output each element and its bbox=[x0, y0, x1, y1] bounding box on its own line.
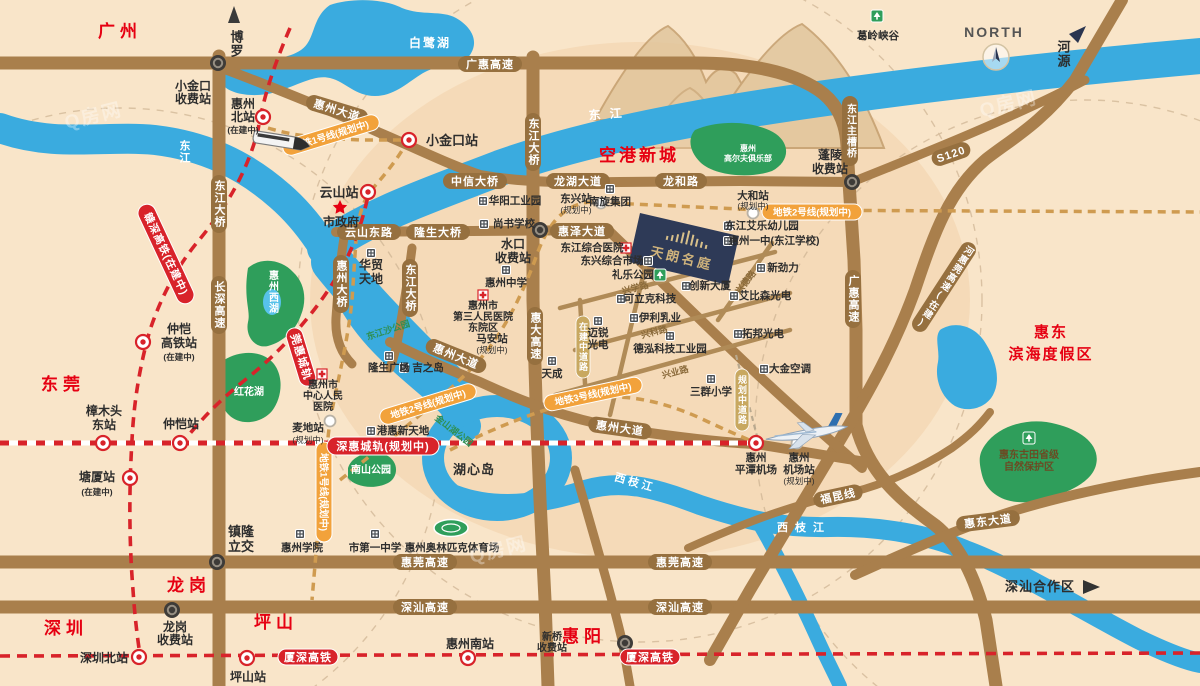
label-gutian-2: 自然保护区 bbox=[1004, 460, 1054, 473]
badge-shenshan-1: 深汕高速 bbox=[401, 600, 449, 614]
label-mairui-2: 光电 bbox=[587, 338, 609, 351]
label-chuangxin: 创新大厦 bbox=[688, 279, 731, 292]
label-longsheng-plaza: 隆生广场 bbox=[368, 361, 410, 374]
longgang-toll-icon bbox=[164, 602, 180, 618]
label-zk-hsr-2: 高铁站 bbox=[161, 335, 197, 350]
label-apsta-2: 机场站 bbox=[783, 463, 815, 476]
label-huayang: 华阳工业园 bbox=[489, 194, 542, 207]
label-huxindao: 湖心岛 bbox=[453, 462, 495, 477]
label-dahe-2: (规划中) bbox=[737, 201, 768, 211]
label-guangzhou: 广州 bbox=[98, 21, 142, 41]
label-h3-3: 东院区 bbox=[468, 321, 498, 334]
label-xizhi-2: 西枝江 bbox=[777, 520, 831, 534]
central-hospital-icon bbox=[317, 369, 327, 379]
ganghui-icon bbox=[367, 427, 376, 436]
badge-guanghui-top: 广惠高速 bbox=[466, 57, 514, 71]
label-dongxing-2: (规划中) bbox=[560, 205, 591, 215]
label-bailu-lake: 白鹭湖 bbox=[409, 35, 451, 50]
label-chosp-3: 医院 bbox=[313, 400, 333, 413]
label-maidi-2: (规划中) bbox=[292, 435, 323, 445]
label-boluo: 博罗 bbox=[229, 29, 244, 58]
label-shenzhen: 深圳 bbox=[44, 618, 88, 638]
pingtan-airport-icon bbox=[749, 436, 763, 450]
label-lile-park: 礼乐公园 bbox=[612, 268, 654, 281]
badge-longhe-rd: 龙和路 bbox=[662, 174, 699, 188]
label-jusco: 吉之岛 bbox=[412, 361, 444, 374]
label-xjk-toll-1: 小金口 bbox=[175, 78, 211, 93]
label-shenshan-coop: 深汕合作区 bbox=[1005, 579, 1075, 594]
longsheng-plaza-icon bbox=[385, 352, 394, 361]
label-apsta-1: 惠州 bbox=[789, 451, 810, 464]
label-chosp-1: 惠州市 bbox=[308, 378, 338, 391]
label-zhenlong-2: 立交 bbox=[228, 539, 254, 554]
label-yunshan-sta: 云山站 bbox=[319, 185, 358, 200]
badge-huize-ave: 惠泽大道 bbox=[558, 224, 606, 238]
label-nanshan: 南山公园 bbox=[351, 463, 391, 476]
label-nanxuan: 南旋集团 bbox=[589, 195, 631, 208]
badge-constr-road: 在建中道路 bbox=[578, 321, 589, 372]
huamao-icon bbox=[367, 249, 376, 258]
huayang-park-icon bbox=[479, 197, 488, 206]
label-penling-2: 收费站 bbox=[812, 161, 848, 176]
label-apsta-3: (规划中) bbox=[783, 476, 814, 486]
badge-xiashen-1: 厦深高铁 bbox=[284, 650, 332, 664]
badge-changshen: 长深高速 bbox=[213, 280, 226, 329]
label-dx-market: 东兴综合市场 bbox=[581, 254, 644, 267]
badge-planned-road: 规划中道路 bbox=[737, 374, 748, 425]
label-huiyang: 惠阳 bbox=[562, 626, 606, 646]
label-huamao-2: 天地 bbox=[359, 271, 383, 286]
lile-park-icon bbox=[654, 269, 666, 281]
label-golf-1: 惠州 bbox=[740, 143, 756, 153]
yunshan-station-icon bbox=[361, 185, 375, 199]
label-golf-2: 高尔夫俱乐部 bbox=[724, 153, 772, 163]
label-zmt-2: 东站 bbox=[92, 417, 116, 432]
gelin-valley-icon bbox=[871, 10, 883, 22]
label-ganghui: 港惠新天地 bbox=[377, 424, 430, 437]
label-airport-2: 平潭机场 bbox=[735, 463, 777, 476]
penling-toll-icon bbox=[844, 174, 860, 190]
label-huamao-1: 华贸 bbox=[359, 257, 383, 272]
badge-dongjiang-bridge-e: 东江大桥 bbox=[404, 263, 417, 312]
label-no1-school: 市第一中学 bbox=[349, 541, 402, 554]
sanqun-school-icon bbox=[707, 375, 716, 384]
label-shangshu: 尚书学校 bbox=[493, 217, 535, 230]
label-huidong-2: 滨海度假区 bbox=[1008, 345, 1093, 363]
label-yili: 伊利乳业 bbox=[638, 311, 681, 324]
zhongkai-station-icon bbox=[173, 436, 187, 450]
label-dongjiang-main: 东江 bbox=[588, 105, 631, 123]
label-lg-toll-1: 龙岗 bbox=[163, 619, 187, 634]
label-pingshan-sta: 坪山站 bbox=[230, 669, 266, 684]
label-tangxia-1: 塘厦站 bbox=[79, 469, 115, 484]
badge-longhu-ave: 龙湖大道 bbox=[553, 174, 602, 188]
label-yizhong: 惠州一中(东江学校) bbox=[729, 234, 820, 247]
college-icon bbox=[296, 530, 305, 539]
label-zk-hsr-3: (在建中) bbox=[163, 352, 194, 362]
xinjinli-icon bbox=[757, 264, 766, 273]
label-heyuan: 河源 bbox=[1056, 39, 1071, 68]
badge-shenhui: 深惠城轨(规划中) bbox=[336, 439, 429, 453]
badge-shenshan-2: 深汕高速 bbox=[656, 600, 704, 614]
label-tuobang: 拓邦光电 bbox=[742, 327, 784, 340]
badge-huizhou-bridge: 惠州大桥 bbox=[335, 259, 349, 308]
map-canvas: 天朗名庭 广惠高速 惠州大道 中信大桥 龙湖大道 龙和路 云山东路 隆生大桥 惠… bbox=[0, 0, 1200, 686]
xiaojinkou-station-icon bbox=[402, 133, 416, 147]
label-kindergarten: 东江艾乐幼儿园 bbox=[725, 219, 799, 232]
badge-zhongxin-bridge: 中信大桥 bbox=[451, 174, 499, 188]
maidi-station-icon bbox=[325, 416, 336, 427]
label-college: 惠州学院 bbox=[281, 541, 323, 554]
label-hzn-1: 惠州 bbox=[231, 96, 255, 111]
label-zk-hsr-1: 仲恺 bbox=[167, 321, 191, 336]
label-zhongkai-sta: 仲恺站 bbox=[163, 416, 199, 431]
label-xinqiao-2: 收费站 bbox=[537, 641, 567, 654]
huizhou-south-station-icon bbox=[461, 651, 475, 665]
label-konggang: 空港新城 bbox=[599, 145, 679, 165]
label-honghua: 红花湖 bbox=[234, 385, 264, 398]
mairui-icon bbox=[594, 317, 603, 326]
badge-metro2-ne: 地铁2号线(规划中) bbox=[773, 207, 851, 219]
label-absen: 艾比森光电 bbox=[739, 289, 792, 302]
location-map: 天朗名庭 广惠高速 惠州大道 中信大桥 龙湖大道 龙和路 云山东路 隆生大桥 惠… bbox=[0, 0, 1200, 686]
label-tiancheng: 天成 bbox=[542, 367, 563, 380]
zhangmutou-east-station-icon bbox=[96, 436, 110, 450]
label-huizhou-south: 惠州南站 bbox=[446, 636, 494, 651]
zhenlong-junction-icon bbox=[209, 554, 225, 570]
label-shuikou-1: 水口 bbox=[501, 236, 525, 251]
dongxing-market-icon bbox=[644, 257, 653, 266]
label-dongjiang-w: 东江 bbox=[178, 139, 191, 164]
tiancheng-icon bbox=[548, 357, 557, 366]
label-chosp-2: 中心人民 bbox=[303, 389, 343, 402]
label-xiaojinkou-sta: 小金口站 bbox=[426, 133, 478, 148]
badge-huiguan-2: 惠莞高速 bbox=[656, 555, 704, 569]
badge-longsheng-bridge: 隆生大桥 bbox=[414, 225, 462, 239]
badge-huida: 惠大高速 bbox=[529, 311, 542, 360]
huizhou-north-station-icon bbox=[256, 110, 270, 124]
label-shenzhen-north: 深圳北站 bbox=[80, 650, 128, 665]
compass-icon bbox=[983, 44, 1009, 70]
label-longgang: 龙岗 bbox=[166, 575, 211, 595]
badge-dongjiang-main-bridge: 东江主槽桥 bbox=[845, 102, 857, 158]
label-maidi-1: 麦地站 bbox=[292, 421, 324, 434]
label-dongguan: 东莞 bbox=[41, 374, 85, 394]
label-zmt-1: 樟木头 bbox=[86, 403, 122, 418]
label-sanqun: 三群小学 bbox=[690, 385, 732, 398]
label-maan-2: (规划中) bbox=[476, 345, 507, 355]
label-h3-2: 第三人民医院 bbox=[453, 310, 513, 323]
badge-guanghui-e: 广惠高速 bbox=[847, 274, 860, 323]
badge-metro1-s: 地铁1号线(规划中) bbox=[318, 453, 330, 531]
label-penling-1: 蓬陵 bbox=[818, 147, 843, 162]
pingshan-station-icon bbox=[240, 651, 254, 665]
label-zhenlong-1: 镇隆 bbox=[228, 524, 255, 539]
label-daikin: 大金空调 bbox=[769, 362, 811, 375]
olympic-stadium-icon bbox=[434, 520, 468, 537]
label-xjk-toll-2: 收费站 bbox=[175, 91, 211, 106]
label-xinqiao-1: 新桥 bbox=[542, 630, 563, 643]
daikin-icon bbox=[760, 365, 769, 374]
label-hzn-2: 北站 bbox=[231, 109, 255, 124]
label-hz-zhongxue: 惠州中学 bbox=[485, 276, 527, 289]
label-pingshan: 坪山 bbox=[254, 613, 298, 632]
label-airport-1: 惠州 bbox=[746, 451, 767, 464]
huizhou-zhongxue-icon bbox=[502, 266, 511, 275]
badge-dongjiang-bridge-c: 东江大桥 bbox=[527, 117, 540, 166]
label-dongxing-1: 东兴站 bbox=[560, 192, 592, 205]
label-north: NORTH bbox=[964, 24, 1024, 40]
gutian-reserve-icon bbox=[1023, 432, 1035, 444]
label-h3-1: 惠州市 bbox=[468, 299, 498, 312]
label-lg-toll-2: 收费站 bbox=[157, 632, 193, 647]
label-gelin-valley: 葛岭峡谷 bbox=[856, 29, 899, 42]
no3-hospital-icon bbox=[478, 290, 488, 300]
shenzhen-north-station-icon bbox=[132, 650, 146, 664]
label-shuikou-2: 收费站 bbox=[495, 250, 531, 265]
label-hzn-3: (在建中) bbox=[227, 125, 258, 135]
label-mairui-1: 迈锐 bbox=[588, 326, 609, 339]
zhongkai-hsr-station-icon bbox=[136, 335, 150, 349]
label-gutian-1: 惠东古田省级 bbox=[999, 448, 1060, 461]
shangshu-school-icon bbox=[480, 220, 489, 229]
badge-dongjiang-bridge-w: 东江大桥 bbox=[213, 179, 226, 228]
label-dj-hospital: 东江综合医院 bbox=[561, 241, 624, 254]
label-dehong: 德泓科技工业园 bbox=[632, 342, 707, 355]
badge-xiashen-2: 厦深高铁 bbox=[626, 650, 674, 664]
nanxuan-icon bbox=[606, 185, 615, 194]
badge-huiguan-1: 惠莞高速 bbox=[401, 555, 449, 569]
xiaojinkou-toll-icon bbox=[210, 55, 226, 71]
label-government: 市政府 bbox=[323, 214, 359, 229]
label-tangxia-2: (在建中) bbox=[81, 487, 112, 497]
label-xinjinli: 新劲力 bbox=[767, 261, 799, 274]
yili-icon bbox=[630, 314, 639, 323]
tangxia-station-icon bbox=[123, 471, 137, 485]
no1-school-icon bbox=[371, 530, 380, 539]
label-huidong-1: 惠东 bbox=[1034, 323, 1068, 341]
